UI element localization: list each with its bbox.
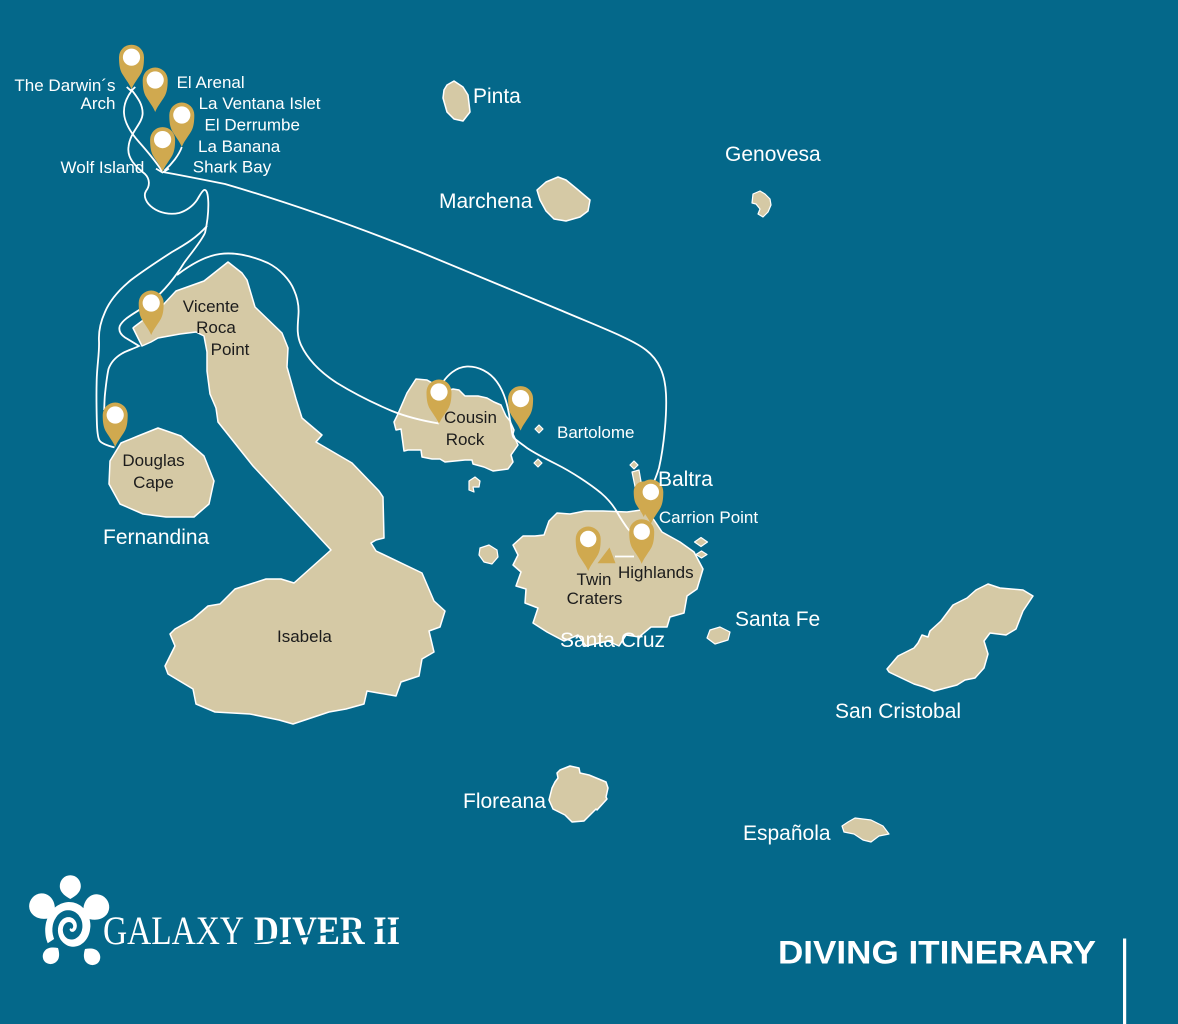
- svg-text:El Arenal: El Arenal: [177, 73, 245, 92]
- svg-text:La Ventana Islet: La Ventana Islet: [199, 94, 321, 113]
- svg-text:GALAXY: GALAXY: [103, 908, 244, 953]
- svg-text:Arch: Arch: [81, 94, 116, 113]
- svg-text:Vicente: Vicente: [183, 297, 239, 316]
- svg-text:Highlands: Highlands: [618, 563, 694, 582]
- svg-text:DIVING ITINERARY: DIVING ITINERARY: [778, 935, 1096, 971]
- svg-text:Floreana: Floreana: [463, 790, 546, 813]
- svg-text:Douglas: Douglas: [122, 451, 184, 470]
- svg-text:The Darwin´s: The Darwin´s: [14, 76, 115, 95]
- svg-text:Rock: Rock: [446, 430, 485, 449]
- svg-text:Santa Cruz: Santa Cruz: [560, 629, 665, 652]
- svg-text:Carrion Point: Carrion Point: [659, 508, 758, 527]
- svg-text:Point: Point: [211, 340, 250, 359]
- svg-text:Marchena: Marchena: [439, 190, 533, 213]
- svg-text:Roca: Roca: [196, 318, 236, 337]
- svg-text:Bartolome: Bartolome: [557, 423, 634, 442]
- svg-text:La Banana: La Banana: [198, 137, 281, 156]
- svg-text:Isabela: Isabela: [277, 627, 332, 646]
- svg-text:Pinta: Pinta: [473, 85, 521, 108]
- svg-text:Twin: Twin: [577, 570, 612, 589]
- svg-text:El Derrumbe: El Derrumbe: [205, 116, 300, 135]
- svg-text:San Cristobal: San Cristobal: [835, 700, 961, 723]
- svg-text:Cousin: Cousin: [444, 408, 497, 427]
- svg-text:Cape: Cape: [133, 473, 174, 492]
- svg-text:DIVER II: DIVER II: [254, 908, 400, 953]
- svg-text:Española: Española: [743, 822, 831, 845]
- svg-text:Baltra: Baltra: [658, 468, 713, 491]
- svg-text:Fernandina: Fernandina: [103, 526, 210, 549]
- svg-text:Wolf Island: Wolf Island: [61, 158, 145, 177]
- svg-text:Genovesa: Genovesa: [725, 143, 821, 166]
- svg-text:Shark Bay: Shark Bay: [193, 158, 272, 177]
- svg-text:Santa Fe: Santa Fe: [735, 608, 820, 631]
- svg-text:Craters: Craters: [567, 589, 623, 608]
